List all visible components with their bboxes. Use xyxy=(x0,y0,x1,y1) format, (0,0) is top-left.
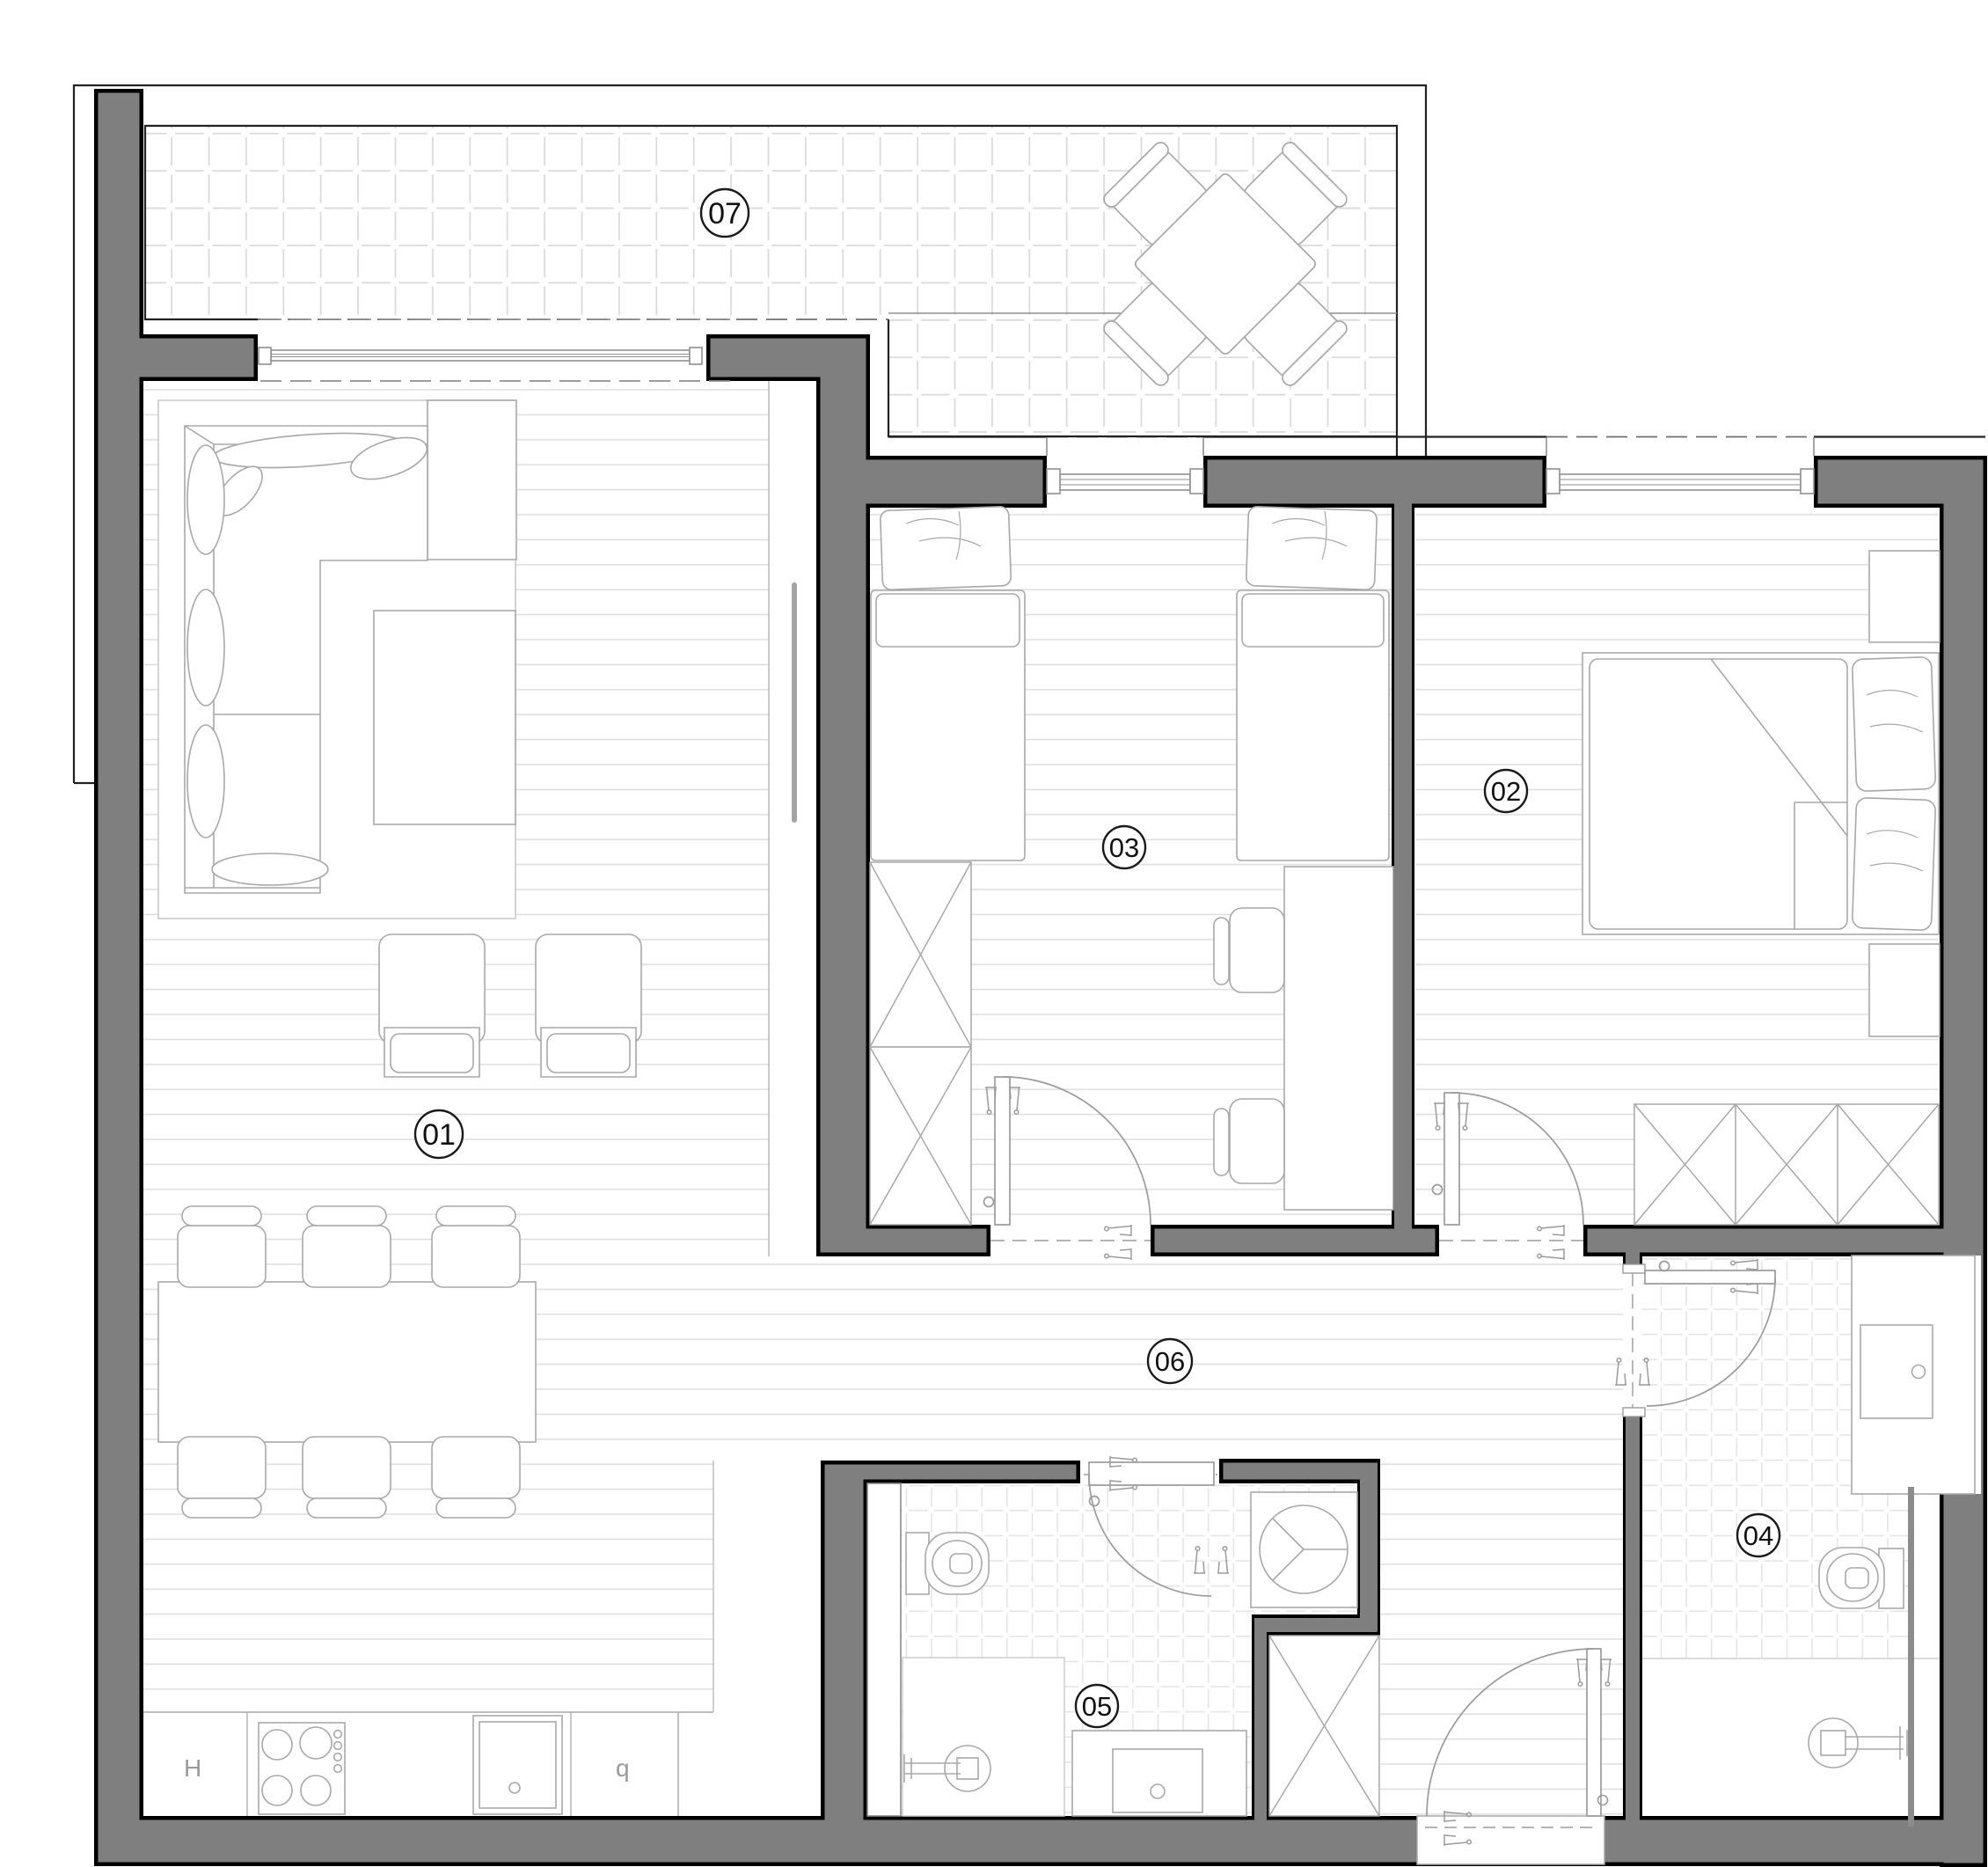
svg-text:04: 04 xyxy=(1743,1520,1773,1551)
svg-text:01: 01 xyxy=(422,1118,456,1152)
svg-text:02: 02 xyxy=(1491,776,1521,807)
svg-text:06: 06 xyxy=(1155,1346,1185,1377)
svg-text:07: 07 xyxy=(708,197,742,231)
svg-text:H: H xyxy=(184,1754,201,1782)
svg-text:q: q xyxy=(616,1754,630,1782)
svg-text:05: 05 xyxy=(1082,1691,1112,1722)
svg-text:03: 03 xyxy=(1109,832,1139,863)
